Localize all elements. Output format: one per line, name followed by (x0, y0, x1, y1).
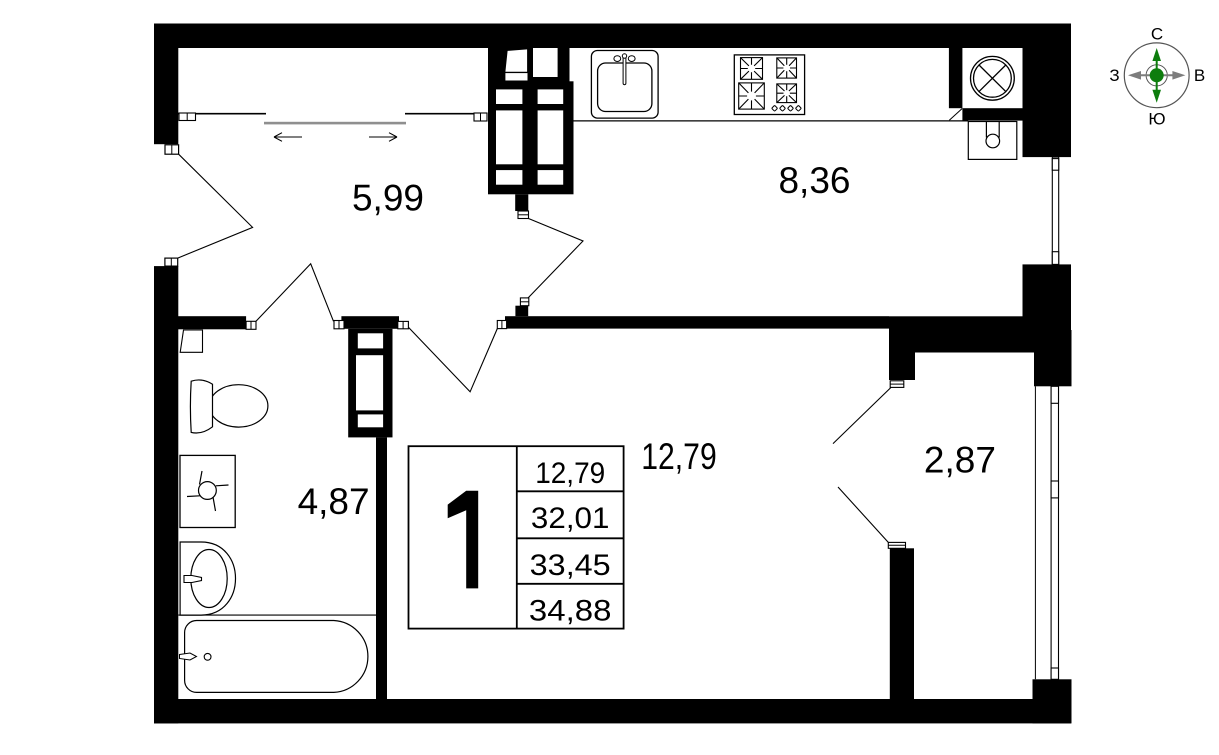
svg-text:2,87: 2,87 (924, 440, 996, 481)
svg-text:33,45: 33,45 (530, 549, 611, 582)
svg-text:В: В (1194, 66, 1205, 85)
svg-text:С: С (1151, 25, 1163, 44)
svg-text:12,79: 12,79 (641, 436, 716, 477)
svg-text:8,36: 8,36 (778, 160, 850, 201)
svg-text:32,01: 32,01 (531, 502, 610, 535)
svg-text:34,88: 34,88 (529, 594, 612, 627)
svg-text:4,87: 4,87 (298, 481, 370, 522)
svg-text:5,99: 5,99 (352, 178, 424, 219)
svg-text:Ю: Ю (1148, 110, 1165, 129)
svg-text:12,79: 12,79 (535, 457, 605, 490)
svg-text:З: З (1109, 66, 1119, 85)
